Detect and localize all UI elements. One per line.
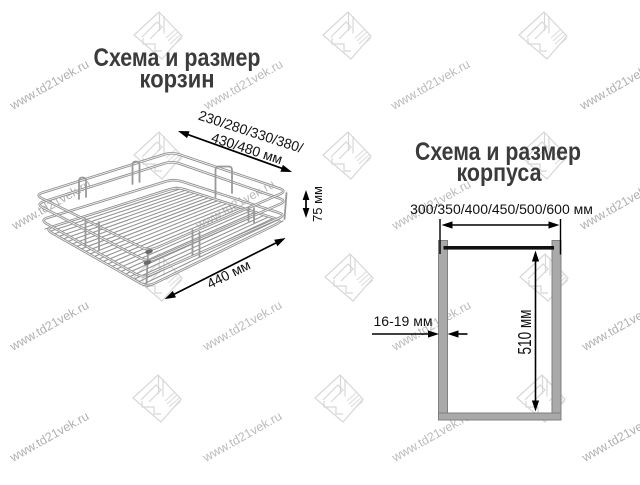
svg-text:75 мм: 75 мм: [310, 186, 325, 222]
svg-text:корпуса: корпуса: [457, 159, 543, 187]
svg-text:корзин: корзин: [140, 66, 215, 94]
svg-text:510 мм: 510 мм: [515, 310, 535, 355]
svg-text:300/350/400/450/500/600 мм: 300/350/400/450/500/600 мм: [410, 201, 593, 217]
svg-text:16-19 мм: 16-19 мм: [374, 313, 433, 329]
